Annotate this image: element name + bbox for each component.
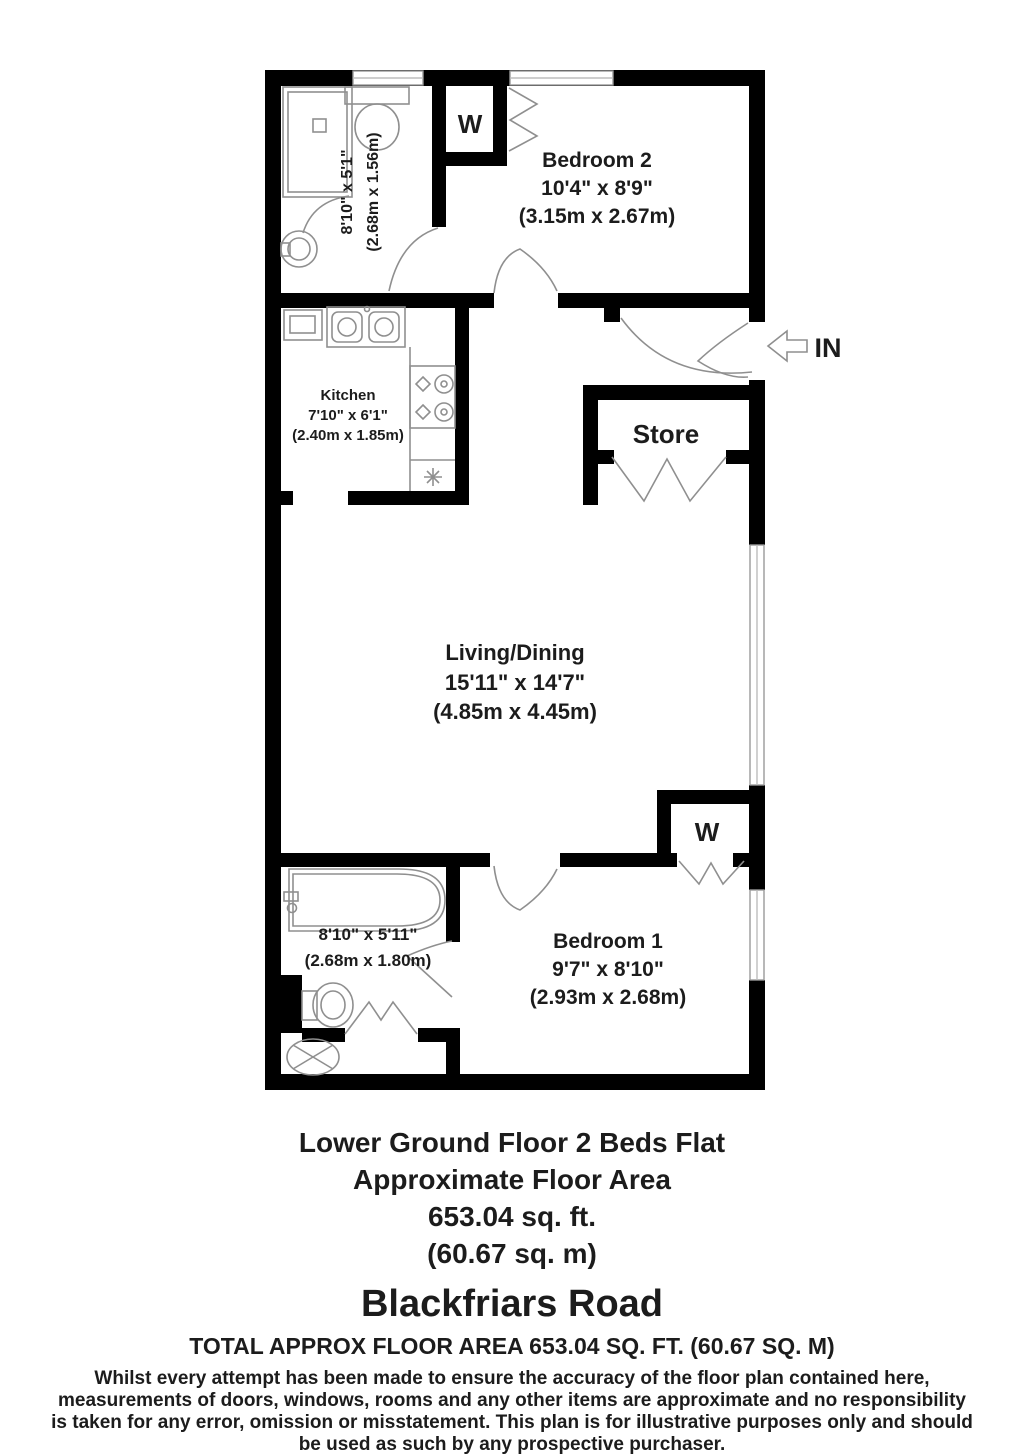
kitchen-sink-basin-1: [332, 312, 362, 342]
wall-hall-band-left: [281, 293, 494, 308]
bathroom-bottom-bifold-door: [345, 1002, 417, 1034]
kitchen-sink-tap: [365, 307, 370, 312]
store-name: Store: [633, 419, 699, 449]
bedroom2-dims-imperial: 10'4" x 8'9": [541, 177, 653, 200]
shower-head: [313, 119, 326, 132]
entry-label: IN: [815, 333, 842, 363]
bathroom-top-dims-imperial: 8'10" x 5'1": [339, 149, 356, 234]
bathtub: [289, 869, 445, 931]
hob-burner-2-inner: [441, 409, 447, 415]
entry-arrow-icon: [768, 331, 807, 361]
kitchen-sink-bowl-2: [375, 318, 393, 336]
wall-bathroom-bottom-right-b: [446, 1028, 460, 1074]
property-address: Blackfriars Road: [0, 1283, 1024, 1326]
wall-left-chunk: [265, 975, 302, 1033]
basin-top-inner: [288, 238, 310, 260]
wall-kitchen-bottom: [348, 491, 469, 505]
wall-outer-left: [265, 70, 281, 1090]
hob-burner-1-inner: [441, 381, 447, 387]
wall-wardrobe-bottom-top: [657, 790, 749, 804]
summary-line-3: 653.04 sq. ft.: [0, 1198, 1024, 1235]
wall-outer-right-bottom: [749, 980, 765, 1090]
living-dims-metric: (4.85m x 4.45m): [433, 699, 597, 724]
store-bifold-door: [612, 457, 726, 501]
toilet-top-cistern: [345, 87, 409, 104]
wall-outer-right-mid: [749, 380, 765, 545]
kitchen-sink-bowl-1: [338, 318, 356, 336]
bathroom-bottom-dims-imperial: 8'10" x 5'11": [319, 925, 418, 944]
washing-machine-symbol: [287, 1039, 339, 1075]
bedroom1-name: Bedroom 1: [553, 930, 663, 953]
disclaimer-line-3: is taken for any error, omission or miss…: [0, 1412, 1024, 1434]
bathtub-tap: [284, 892, 298, 901]
bedroom1-dims-metric: (2.93m x 2.68m): [530, 986, 686, 1009]
hob-knob-2: [416, 405, 430, 419]
bathroom-bottom-dims-metric: (2.68m x 1.80m): [305, 951, 432, 970]
wardrobe-bottom-label: W: [695, 817, 720, 847]
wall-outer-right-upper: [749, 70, 765, 322]
hall-door-arc: [621, 318, 752, 373]
disclaimer-line-1: Whilst every attempt has been made to en…: [0, 1368, 1024, 1390]
wall-bathroom-bottom-right-a: [446, 867, 460, 942]
kitchen-unit-inner: [290, 316, 315, 333]
wall-hall-band-right: [558, 293, 765, 308]
wall-wardrobe-top-right: [493, 70, 507, 160]
hob-knob-1: [416, 377, 430, 391]
floor-plan: W Bedroom 2 10'4" x 8'9" (3.15m x 2.67m)…: [0, 0, 1024, 1110]
wall-store-left: [583, 385, 598, 505]
kitchen-extractor-symbol: [424, 468, 442, 486]
summary-line-2: Approximate Floor Area: [0, 1161, 1024, 1198]
floorplan-page: W Bedroom 2 10'4" x 8'9" (3.15m x 2.67m)…: [0, 0, 1024, 1454]
wall-store-stub-right: [726, 450, 749, 464]
kitchen-name: Kitchen: [320, 387, 375, 404]
wardrobe-top-label: W: [458, 109, 483, 139]
disclaimer-line-2: measurements of doors, windows, rooms an…: [0, 1390, 1024, 1412]
entry-door-arc: [698, 323, 748, 377]
disclaimer: Whilst every attempt has been made to en…: [0, 1368, 1024, 1454]
plan-summary: Lower Ground Floor 2 Beds Flat Approxima…: [0, 1124, 1024, 1272]
wall-bedroom1-band-left: [281, 853, 490, 867]
hob-burner-1: [435, 375, 453, 393]
basin-top: [281, 231, 317, 267]
bedroom2-name: Bedroom 2: [542, 149, 652, 172]
bedroom2-door-arc: [494, 249, 557, 293]
wall-outer-right-lower: [749, 785, 765, 890]
living-name: Living/Dining: [445, 640, 584, 665]
wall-wardrobe-top-bottom: [432, 152, 507, 166]
kitchen-dims-imperial: 7'10" x 6'1": [308, 407, 388, 424]
bathtub-inner: [293, 874, 440, 926]
window-living: [750, 545, 764, 785]
total-floor-area: TOTAL APPROX FLOOR AREA 653.04 SQ. FT. (…: [0, 1333, 1024, 1360]
wall-bathroom-bottom-band-r: [418, 1028, 446, 1042]
kitchen-dims-metric: (2.40m x 1.85m): [292, 427, 404, 444]
window-bedroom1: [750, 890, 764, 980]
wall-store-stub-left: [598, 450, 614, 464]
bedroom1-dims-imperial: 9'7" x 8'10": [552, 958, 664, 981]
disclaimer-line-4: be used as such by any prospective purch…: [0, 1434, 1024, 1454]
wall-outer-bottom: [265, 1074, 765, 1090]
bathroom-top-door-arc: [389, 228, 438, 291]
summary-line-4: (60.67 sq. m): [0, 1235, 1024, 1272]
kitchen-sink-basin-2: [369, 312, 399, 342]
wall-hall-stub: [604, 308, 620, 322]
toilet-bottom-bowl-inner: [321, 991, 345, 1019]
summary-line-1: Lower Ground Floor 2 Beds Flat: [0, 1124, 1024, 1161]
toilet-bottom-bowl: [313, 983, 353, 1027]
living-dims-imperial: 15'11" x 14'7": [445, 670, 585, 695]
window-bedroom2: [510, 71, 613, 85]
wall-store-top: [583, 385, 765, 400]
wall-bathroom-top-right: [432, 70, 446, 227]
hob-burner-2: [435, 403, 453, 421]
wall-kitchen-right: [455, 308, 469, 505]
window-bathroom-top: [353, 71, 423, 85]
bedroom2-dims-metric: (3.15m x 2.67m): [519, 205, 675, 228]
wardrobe-top-bifold-door: [509, 88, 537, 151]
wall-kitchen-stub: [281, 491, 293, 505]
bedroom1-door-arc: [494, 866, 557, 910]
bathroom-top-dims-metric: (2.68m x 1.56m): [365, 132, 382, 251]
